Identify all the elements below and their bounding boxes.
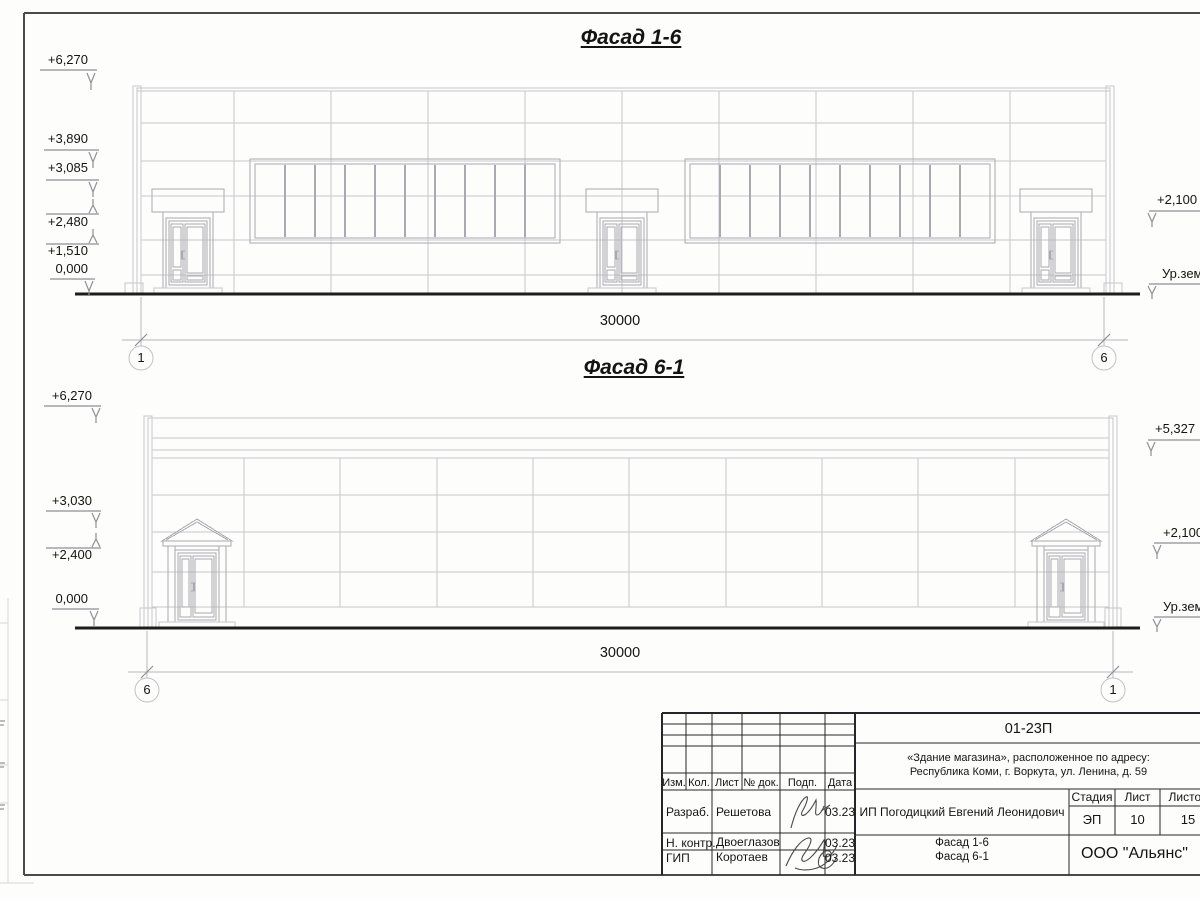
level-label: +3,030 xyxy=(28,494,92,509)
axis-number: 1 xyxy=(129,351,153,366)
entrance-porch xyxy=(159,519,235,627)
level-label: +3,890 xyxy=(28,132,88,147)
ground-level-label: Ур.зем xyxy=(1163,600,1200,615)
level-label: +6,270 xyxy=(28,389,92,404)
left-margin-artifacts xyxy=(0,598,34,883)
stage-value: ЭП xyxy=(1069,813,1115,828)
doc-code: 01-23П xyxy=(857,721,1200,738)
drawing-sheet: Фасад 1-6 +6,270 +3,890 +3,085 +2,480 +1… xyxy=(0,0,1200,900)
col-header-kol: Кол. xyxy=(686,777,712,790)
dimension-label: 30000 xyxy=(540,313,700,330)
sheet-frame xyxy=(24,13,1200,875)
person-name: Коротаев xyxy=(716,851,768,865)
col-header-izm: Изм. xyxy=(662,777,686,790)
level-label: +1,510 xyxy=(28,244,88,259)
facade-bottom-drawing xyxy=(75,416,1140,628)
col-header-podp: Подп. xyxy=(780,777,825,790)
facade-top-level-marks xyxy=(40,70,1200,299)
role-label: ГИП xyxy=(666,852,690,866)
facade-bottom-dimension xyxy=(128,631,1133,702)
entrance-door xyxy=(152,189,224,293)
sheet-number: 10 xyxy=(1115,813,1160,828)
level-label: +6,270 xyxy=(28,53,88,68)
stage-header: Стадия xyxy=(1069,791,1115,805)
level-label: 0,000 xyxy=(28,592,88,607)
role-label: Н. контр. xyxy=(666,837,716,851)
role-label: Разраб. xyxy=(666,806,709,820)
client-name: ИП Погодицкий Евгений Леонидович xyxy=(856,806,1068,820)
level-label: +2,100 xyxy=(1157,193,1197,208)
date-value: 03.23 xyxy=(825,806,855,820)
dimension-label: 30000 xyxy=(540,645,700,662)
company-name: ООО "Альянс" xyxy=(1069,845,1200,863)
col-header-list: Лист xyxy=(712,777,742,790)
level-label: +5,327 xyxy=(1155,422,1195,437)
facade-top-title: Фасад 1-6 xyxy=(531,26,731,50)
sheets-total-header: Листов xyxy=(1160,791,1200,805)
facade-top-drawing xyxy=(75,86,1140,294)
object-description-line2: Республика Коми, г. Воркута, ул. Ленина,… xyxy=(857,766,1200,779)
level-label: +2,480 xyxy=(28,215,88,230)
sheets-total: 15 xyxy=(1160,813,1200,828)
ribbon-window xyxy=(685,159,995,243)
date-value: 03.23 xyxy=(825,837,855,851)
level-label: +2,400 xyxy=(28,548,92,563)
ground-level-label: Ур.зем xyxy=(1162,267,1200,282)
person-name: Решетова xyxy=(716,806,771,820)
date-value: 03.23 xyxy=(825,852,855,866)
facade-bottom-level-marks xyxy=(44,406,1200,632)
person-name: Двоеглазов xyxy=(716,836,780,850)
axis-number: 6 xyxy=(1092,351,1116,366)
drawing-canvas xyxy=(0,0,1200,900)
drawing-name-line1: Фасад 1-6 xyxy=(857,837,1067,850)
level-label: +2,100 xyxy=(1163,526,1200,541)
drawing-name-line2: Фасад 6-1 xyxy=(857,851,1067,864)
sheet-header: Лист xyxy=(1115,791,1160,805)
axis-number: 6 xyxy=(135,683,159,698)
col-header-data: Дата xyxy=(825,777,855,790)
ribbon-window xyxy=(250,159,560,243)
entrance-door xyxy=(1020,189,1092,293)
level-label: +3,085 xyxy=(28,161,88,176)
col-header-doc: № док. xyxy=(742,777,780,790)
entrance-porch xyxy=(1028,519,1104,627)
axis-number: 1 xyxy=(1101,683,1125,698)
level-label: 0,000 xyxy=(28,262,88,277)
facade-bottom-title: Фасад 6-1 xyxy=(534,356,734,380)
object-description-line1: «Здание магазина», расположенное по адре… xyxy=(857,752,1200,765)
